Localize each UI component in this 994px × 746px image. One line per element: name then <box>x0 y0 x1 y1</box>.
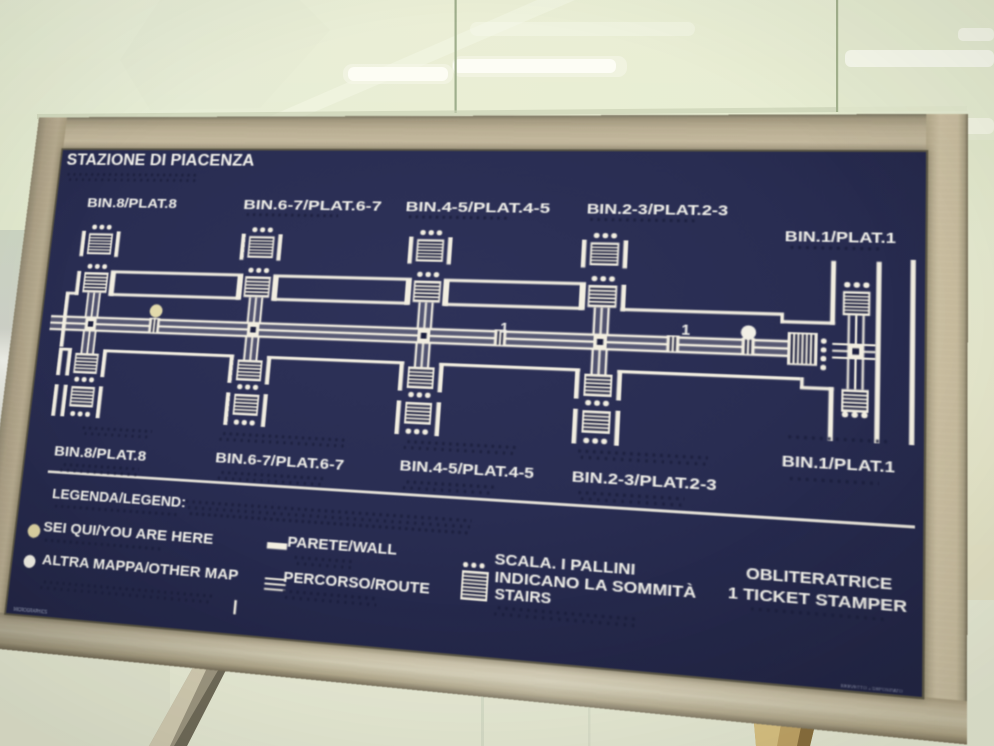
svg-text:BIN.8/PLAT.8: BIN.8/PLAT.8 <box>86 194 177 211</box>
svg-text:BIN.6-7/PLAT.6-7: BIN.6-7/PLAT.6-7 <box>243 196 383 214</box>
svg-text:BIN.2-3/PLAT.2-3: BIN.2-3/PLAT.2-3 <box>586 200 728 219</box>
svg-text:STAZIONE DI PIACENZA: STAZIONE DI PIACENZA <box>66 151 256 170</box>
svg-text:1: 1 <box>500 320 509 337</box>
svg-text:BIN.1/PLAT.1: BIN.1/PLAT.1 <box>785 227 896 247</box>
svg-text:1: 1 <box>681 322 691 339</box>
svg-text:BIN.4-5/PLAT.4-5: BIN.4-5/PLAT.4-5 <box>405 198 551 217</box>
